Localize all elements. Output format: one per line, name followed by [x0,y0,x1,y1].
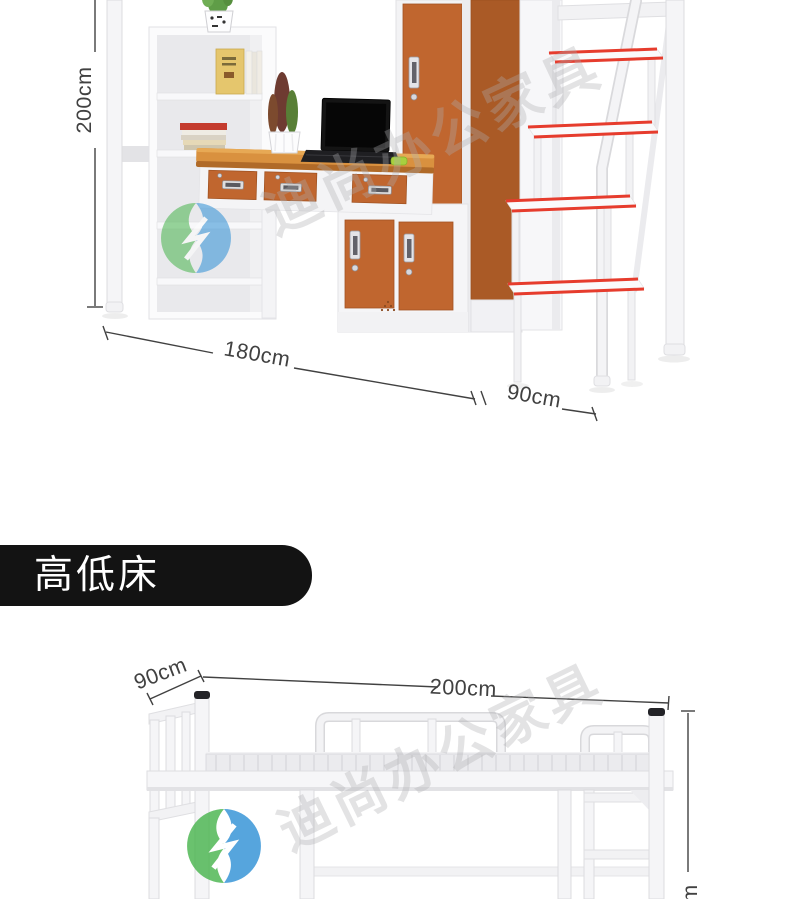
under-desk-cabinet [338,204,468,332]
dim-depth: 90cm [481,380,597,421]
dim-length-label: 200cm [429,675,497,702]
desk-drawers [208,170,407,204]
bunk-bed-photo: 90cm 200cm cm 迪尚办公家具 [0,640,790,899]
dim-height-label: 200cm [72,66,96,133]
laptop [301,98,403,165]
section-banner-title: 高低床 [34,556,160,595]
post-cap [648,708,665,716]
dim-depth-label: 90cm [131,652,191,694]
magazine-stack [180,123,227,150]
dim-depth-label: 90cm [505,380,563,413]
dim-length: 200cm [203,675,669,710]
product-detail-page: 200cm 180cm 90cm 迪尚办公家具 [0,0,790,899]
dim-depth: 90cm [131,652,204,705]
section-banner: 高低床 [0,545,312,606]
green-cup [391,157,407,165]
bunk-bed-illustration: 90cm 200cm cm [0,640,790,899]
loft-bed-combo-illustration: 200cm 180cm 90cm [0,0,790,430]
dim-width: 180cm [103,326,476,405]
dim-height-partial: cm [678,711,702,899]
mattress [206,754,652,773]
dim-width-label: 180cm [222,336,292,371]
bunk-bed-frame [147,691,673,899]
dim-height: 200cm [72,0,103,307]
loft-bed-combo-photo: 200cm 180cm 90cm 迪尚办公家具 [0,0,790,430]
books [216,49,262,94]
dim-height-partial-label: cm [678,884,702,899]
post-cap [194,691,210,699]
